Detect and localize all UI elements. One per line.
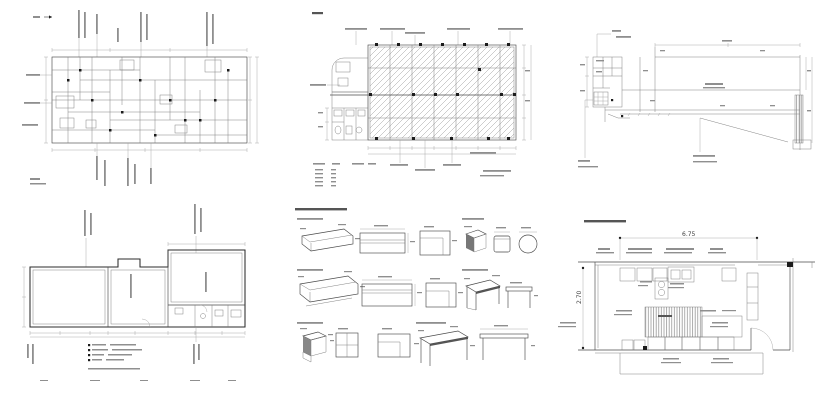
bench-isometric-1 bbox=[300, 224, 360, 251]
bench-front-elevation-1 bbox=[360, 225, 415, 253]
callout-labels-top bbox=[84, 204, 202, 267]
table-isometric-large bbox=[418, 326, 475, 366]
left-annex-rooms bbox=[310, 58, 368, 140]
bench-side-elevation-1 bbox=[420, 226, 457, 255]
table-elevation-small bbox=[506, 282, 538, 308]
plan-walls bbox=[30, 250, 245, 327]
panel-floor-plan-light bbox=[578, 30, 812, 167]
chair-isometric bbox=[300, 328, 333, 362]
drawing-sheet: 6.75 2.70 bbox=[0, 0, 825, 400]
callout-label-top bbox=[597, 30, 631, 57]
section-diagonal-line bbox=[700, 118, 788, 142]
column-markers bbox=[67, 69, 230, 137]
finish-legend bbox=[88, 344, 142, 370]
door-swing bbox=[751, 328, 773, 350]
bench-side-elevation-2 bbox=[426, 278, 463, 307]
north-arrow-icon bbox=[33, 15, 52, 18]
toilet-fixture bbox=[335, 126, 341, 134]
callout-labels-bottom bbox=[661, 358, 733, 363]
chair-front-elevation bbox=[330, 328, 358, 357]
dimension-lines bbox=[580, 40, 812, 143]
kitchen-title-strip bbox=[584, 220, 626, 222]
bench-front-elevation-2 bbox=[362, 276, 422, 306]
hatched-counter-table bbox=[558, 307, 742, 337]
dimension-height: 2.70 bbox=[576, 267, 584, 349]
hatched-shaft bbox=[795, 95, 803, 143]
kitchen-width-dim: 6.75 bbox=[682, 231, 696, 238]
door-arc bbox=[200, 305, 207, 312]
stove-unit bbox=[638, 278, 684, 299]
legend-table bbox=[313, 163, 376, 186]
table-isometric-small bbox=[464, 275, 500, 310]
stool-front-elevation bbox=[494, 227, 510, 252]
stool-top-view bbox=[519, 227, 537, 253]
bench-isometric-2 bbox=[298, 271, 365, 306]
kitchen-height-dim: 2.70 bbox=[576, 290, 583, 304]
callout-labels-top bbox=[596, 248, 726, 253]
dimension-width: 6.75 bbox=[619, 231, 758, 260]
sink-unit bbox=[668, 267, 694, 282]
plan-body bbox=[593, 47, 811, 150]
burner-icon bbox=[658, 289, 664, 295]
sheet-title-strip bbox=[312, 12, 323, 14]
burner-icon bbox=[658, 281, 664, 287]
furniture-title-strip bbox=[295, 208, 347, 210]
panel-hatched-framing-plan bbox=[310, 12, 531, 186]
table-elevation-large bbox=[480, 325, 535, 360]
toilet-fixture bbox=[201, 314, 206, 319]
panel-kitchen-plan: 6.75 2.70 bbox=[558, 220, 815, 374]
callout-labels-top bbox=[345, 28, 523, 45]
callout-labels-bottom bbox=[390, 140, 511, 176]
seat-row-bottom bbox=[622, 337, 734, 350]
door-arc bbox=[142, 319, 150, 327]
appliance bbox=[594, 92, 608, 105]
stool-isometric bbox=[464, 226, 486, 252]
tall-cabinet bbox=[747, 273, 758, 320]
sink-fixture bbox=[356, 127, 362, 133]
panel-long-floor-plan bbox=[22, 204, 245, 381]
drawings-canvas: 6.75 2.70 bbox=[0, 0, 825, 400]
door-arc bbox=[751, 328, 773, 350]
dimension-lines bbox=[22, 242, 245, 381]
chair-side-elevation bbox=[378, 328, 419, 357]
panel-floor-plan-detail bbox=[22, 10, 259, 186]
panel-furniture-details bbox=[295, 208, 538, 366]
hatched-area bbox=[330, 45, 516, 140]
